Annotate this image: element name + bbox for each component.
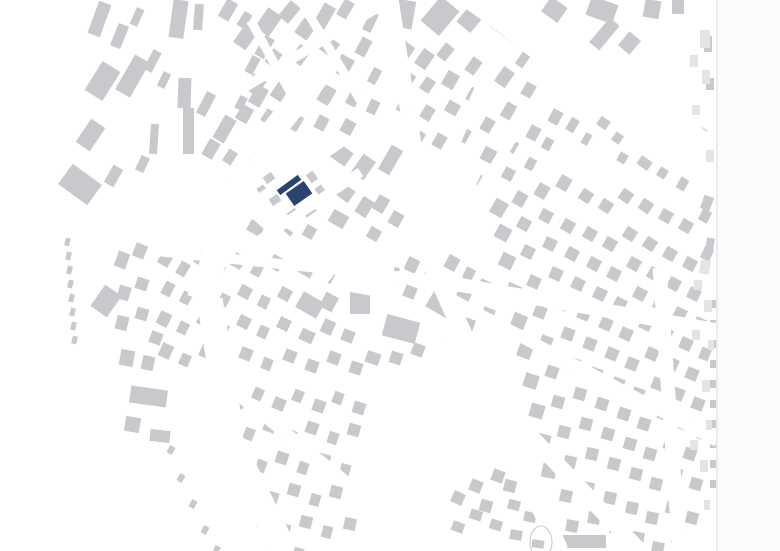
building-footprint <box>66 265 73 274</box>
building-footprint <box>676 177 690 192</box>
building-footprint <box>710 480 716 488</box>
building-footprint <box>444 100 461 117</box>
building-footprint <box>479 116 496 134</box>
building-footprint <box>372 194 390 214</box>
building-footprint <box>176 473 185 483</box>
building-footprint <box>343 517 357 531</box>
building-footprint <box>700 195 714 212</box>
building-footprint <box>573 387 588 402</box>
building-footprint <box>698 208 712 223</box>
building-footprint <box>218 0 238 22</box>
building-footprint <box>367 67 382 85</box>
building-footprint <box>525 124 541 142</box>
building-footprint <box>555 174 572 192</box>
building-footprint <box>533 182 550 200</box>
building-footprint <box>402 284 418 300</box>
building-footprint <box>623 437 638 452</box>
building-footprint <box>626 256 642 272</box>
building-footprint <box>177 78 191 108</box>
building-footprint <box>629 467 644 482</box>
building-footprint <box>244 55 260 75</box>
building-footprint <box>611 131 624 144</box>
building-footprint <box>658 208 674 224</box>
building-footprint <box>468 478 484 494</box>
building-footprint <box>598 198 615 215</box>
building-footprint <box>607 457 622 472</box>
building-footprint <box>130 7 145 27</box>
building-footprint-faint <box>702 70 710 84</box>
building-footprint <box>188 499 197 509</box>
building-footprint <box>589 18 620 51</box>
building-footprint <box>366 226 382 242</box>
page-right-margin <box>718 0 780 551</box>
building-footprint <box>559 489 573 503</box>
building-footprint-faint <box>704 500 710 510</box>
building-footprint <box>414 48 435 70</box>
building-footprint <box>331 391 345 406</box>
building-footprint <box>579 417 594 432</box>
building-footprint <box>293 547 304 551</box>
building-footprint-faint <box>700 30 710 48</box>
building-footprint <box>354 196 375 218</box>
building-footprint <box>76 119 106 152</box>
building-footprint <box>494 66 515 88</box>
building-footprint <box>104 165 124 188</box>
building-footprint <box>168 0 188 39</box>
building-footprint <box>489 198 509 219</box>
building-footprint <box>710 460 716 468</box>
building-footprint <box>304 420 319 435</box>
figure-ground-plan-page <box>0 0 780 551</box>
building-footprint <box>601 427 616 442</box>
building-footprint-faint <box>706 150 714 162</box>
building-footprint <box>643 0 662 19</box>
building-footprint <box>596 116 611 131</box>
building-footprint <box>201 138 220 160</box>
building-footprint <box>149 124 159 154</box>
building-footprint <box>431 132 448 150</box>
building-footprint <box>710 380 716 388</box>
building-footprint <box>304 358 319 373</box>
building-footprint <box>110 23 129 49</box>
figure-ground-map <box>0 0 780 551</box>
building-footprint <box>515 52 530 69</box>
building-footprint <box>490 468 505 483</box>
building-footprint <box>328 209 350 230</box>
building-footprint <box>684 366 700 382</box>
building-footprint <box>321 525 334 539</box>
building-footprint <box>347 423 362 438</box>
building-footprint <box>85 61 121 101</box>
building-footprint <box>625 501 639 515</box>
building-footprint <box>638 198 655 215</box>
building-footprint <box>213 545 221 551</box>
building-footprint <box>618 31 641 54</box>
building-footprint <box>616 406 631 421</box>
building-footprint <box>522 372 540 390</box>
building-footprint <box>419 76 436 94</box>
building-footprint <box>193 4 204 31</box>
building-footprint <box>592 286 608 302</box>
building-footprint <box>532 539 545 549</box>
building-footprint <box>236 314 252 330</box>
building-footprint <box>557 425 572 440</box>
building-footprint <box>166 445 175 455</box>
building-footprint <box>65 251 72 260</box>
building-footprint <box>649 477 664 492</box>
building-footprint <box>636 416 651 431</box>
building-footprint <box>565 117 580 134</box>
building-footprint-faint <box>708 340 714 350</box>
building-footprint <box>479 499 494 514</box>
building-footprint <box>296 461 309 476</box>
building-footprint <box>135 155 150 173</box>
building-footprint <box>274 450 289 465</box>
building-footprint <box>256 324 270 339</box>
building-footprint <box>578 188 595 205</box>
building-footprint <box>64 237 71 246</box>
street-gap <box>213 424 296 551</box>
building-footprint <box>547 108 563 126</box>
building-footprint <box>582 226 598 242</box>
building-footprint <box>319 292 339 313</box>
building-footprint-faint <box>692 105 700 115</box>
building-footprint <box>365 99 380 116</box>
building-footprint <box>160 280 175 297</box>
building-footprint <box>326 431 339 446</box>
building-footprint <box>58 164 102 205</box>
building-footprint <box>500 101 518 120</box>
building-footprint <box>382 314 421 344</box>
building-footprint-faint <box>700 460 708 472</box>
building-footprint <box>560 218 576 234</box>
building-footprint <box>498 252 517 271</box>
building-footprint <box>622 226 639 243</box>
building-footprint <box>489 519 503 532</box>
building-footprint <box>351 400 366 415</box>
building-footprint <box>410 342 425 357</box>
building-footprint <box>212 114 236 143</box>
building-footprint <box>644 346 660 362</box>
building-footprint <box>276 316 292 332</box>
building-footprint <box>329 485 344 500</box>
building-footprint <box>340 328 356 344</box>
building-footprint <box>551 395 566 410</box>
building-footprint <box>685 511 700 526</box>
building-footprint <box>302 224 318 240</box>
building-footprint <box>542 236 558 252</box>
building-footprint-faint <box>702 380 710 392</box>
building-footprint <box>115 54 150 97</box>
street-gap <box>197 298 243 432</box>
building-footprint <box>68 293 75 302</box>
building-footprint <box>141 355 156 371</box>
building-footprint <box>404 256 421 274</box>
building-footprint <box>311 398 326 413</box>
building-footprint <box>586 256 602 272</box>
building-footprint <box>565 519 579 533</box>
building-footprint <box>682 256 698 272</box>
building-footprint <box>672 0 684 14</box>
building-footprint <box>503 479 518 494</box>
building-footprint <box>175 260 191 277</box>
building-footprint-faint <box>692 330 700 340</box>
building-footprint <box>69 307 76 316</box>
building-footprint <box>632 286 648 302</box>
building-footprint <box>378 145 403 176</box>
building-footprint <box>114 315 129 331</box>
building-footprint <box>580 132 592 146</box>
building-footprint <box>618 326 634 342</box>
building-footprint <box>156 310 173 328</box>
building-footprint <box>134 276 149 291</box>
building-footprint <box>594 396 609 411</box>
building-footprint <box>651 541 665 551</box>
building-footprint-faint <box>699 259 711 275</box>
building-footprint <box>291 389 305 404</box>
building-footprint-faint <box>690 440 698 450</box>
building-footprint <box>71 335 78 344</box>
building-footprint <box>516 216 532 232</box>
building-footprint <box>544 364 559 379</box>
building-footprint <box>149 429 170 443</box>
building-footprint-faint <box>694 280 702 290</box>
building-footprint <box>135 307 150 322</box>
building-footprint <box>564 246 580 262</box>
building-footprint <box>710 400 716 408</box>
building-footprint <box>282 348 298 364</box>
building-footprint <box>129 386 168 408</box>
building-footprint <box>148 330 163 345</box>
building-footprint <box>548 266 564 282</box>
building-footprint <box>348 360 363 375</box>
building-footprint <box>67 279 74 288</box>
building-footprint <box>70 321 77 330</box>
building-footprint <box>618 188 635 205</box>
building-footprint-faint <box>690 55 698 67</box>
building-footprint <box>176 320 190 335</box>
building-footprint <box>336 0 355 20</box>
building-footprint <box>678 336 694 352</box>
building-footprint <box>604 346 620 362</box>
building-footprint <box>354 36 372 57</box>
building-footprint <box>606 266 622 282</box>
building-footprint <box>364 350 381 366</box>
building-footprint <box>183 108 194 154</box>
building-footprint <box>570 276 586 292</box>
building-footprint <box>421 0 460 36</box>
building-footprint <box>436 42 455 61</box>
building-footprint <box>114 250 131 269</box>
building-footprint <box>645 511 659 525</box>
building-footprint <box>501 166 516 182</box>
building-footprint <box>124 416 141 433</box>
building-footprint <box>238 346 254 362</box>
building-footprint <box>541 137 555 152</box>
building-footprint <box>299 515 314 530</box>
building-footprint <box>320 318 337 336</box>
building-footprint <box>494 224 513 243</box>
building-footprint <box>560 326 575 341</box>
building-footprint <box>585 0 618 24</box>
building-footprint <box>201 525 210 535</box>
building-footprint-faint <box>704 300 712 312</box>
building-footprint <box>119 349 136 367</box>
building-footprint-faint <box>706 420 712 430</box>
building-footprint <box>419 104 436 122</box>
building-footprint <box>158 342 175 360</box>
building-footprint <box>524 157 538 172</box>
building-footprint <box>306 171 318 184</box>
building-footprint <box>388 350 403 365</box>
building-footprint <box>624 356 640 372</box>
building-footprint <box>636 155 652 171</box>
building-footprint <box>520 244 536 260</box>
building-footprint <box>451 520 466 534</box>
building-footprint <box>443 254 460 272</box>
building-footprint <box>263 172 276 184</box>
building-footprint <box>528 402 545 419</box>
building-footprint <box>662 246 678 262</box>
building-footprint <box>509 529 523 541</box>
building-footprint <box>271 396 287 412</box>
building-footprint <box>339 118 356 136</box>
building-footprint <box>538 208 554 224</box>
building-footprint <box>690 396 705 411</box>
building-footprint <box>616 151 629 164</box>
building-footprint <box>643 447 658 462</box>
street-gap <box>382 0 442 275</box>
building-footprint <box>178 352 192 367</box>
building-footprint <box>441 70 460 90</box>
building-footprint <box>450 490 466 506</box>
building-footprint <box>196 91 216 117</box>
building-footprint <box>237 284 253 300</box>
building-footprint <box>526 274 542 290</box>
building-footprint <box>710 360 716 368</box>
building-footprint <box>582 336 598 352</box>
building-footprint <box>602 236 618 252</box>
building-footprint <box>277 286 293 302</box>
building-footprint <box>642 236 659 253</box>
building-footprint <box>507 499 521 512</box>
building-footprint <box>157 71 171 89</box>
building-footprint <box>90 285 121 318</box>
building-footprint <box>511 190 528 208</box>
building-footprint <box>326 350 341 365</box>
building-footprint <box>464 56 482 75</box>
building-footprint <box>666 276 682 292</box>
building-footprint <box>313 114 329 132</box>
building-footprint <box>656 166 669 179</box>
building-footprint <box>309 493 322 507</box>
building-footprint <box>260 357 274 372</box>
building-footprint <box>585 447 599 461</box>
building-footprint <box>132 242 148 259</box>
street-gap <box>342 251 396 299</box>
building-footprint <box>298 328 316 345</box>
building-footprint <box>257 294 271 309</box>
building-footprint <box>689 477 704 492</box>
building-footprint <box>88 1 112 37</box>
building-footprint <box>678 218 694 234</box>
building-footprint <box>287 483 302 498</box>
building-footprint <box>387 210 404 228</box>
